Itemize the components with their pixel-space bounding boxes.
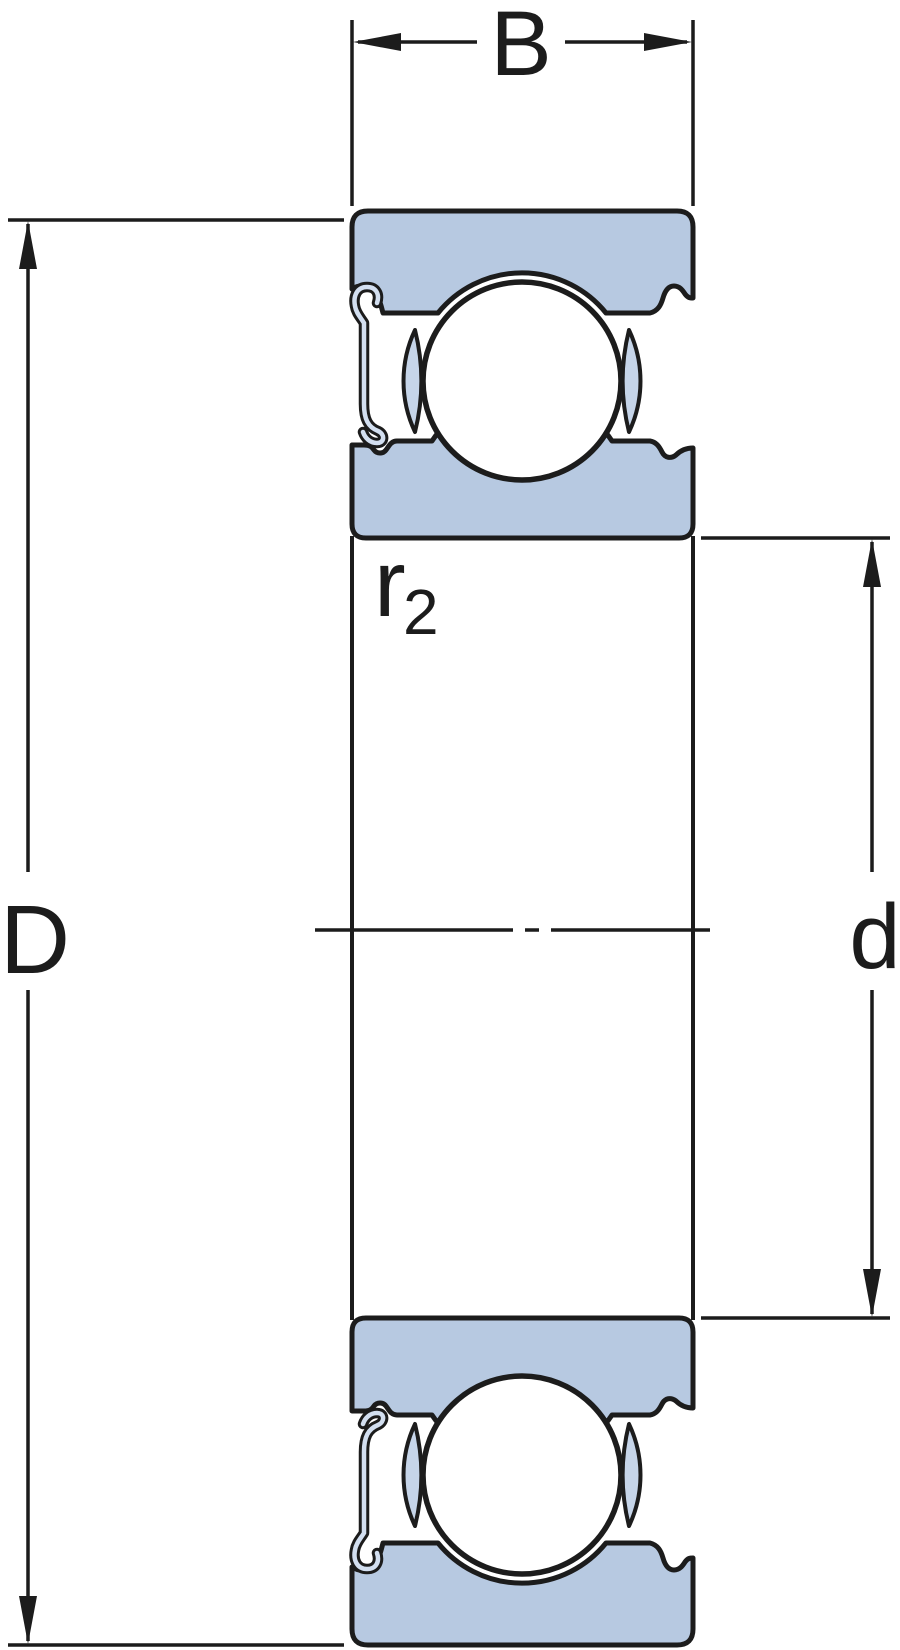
drawing-root: B D d r 2 [0,0,900,1645]
label-width-B: B [490,0,551,95]
ball [423,282,621,480]
bearing-dimension-drawing-page: B D d r 2 [0,0,900,1650]
arrowhead-d-up [19,221,37,269]
arrowhead-bore-down [863,1269,881,1317]
bearing-half-section-bottom [352,1318,693,1645]
bearing-cross-section-diagram: B D d r 2 [0,0,900,1650]
cage-segment-left [404,330,422,432]
arrowhead-b-right [644,33,692,51]
shield-outline [355,287,384,443]
label-outer-diameter-D: D [0,885,70,994]
label-fillet-radius-subscript: 2 [403,576,439,648]
arrowhead-d-down [19,1596,37,1644]
label-bore-diameter-d: d [849,886,900,988]
cage-segment-right [623,330,641,432]
label-fillet-radius-r: r [374,531,406,637]
arrowhead-b-left [353,33,401,51]
arrowhead-bore-up [863,539,881,587]
bearing-half-section-top [352,211,693,538]
